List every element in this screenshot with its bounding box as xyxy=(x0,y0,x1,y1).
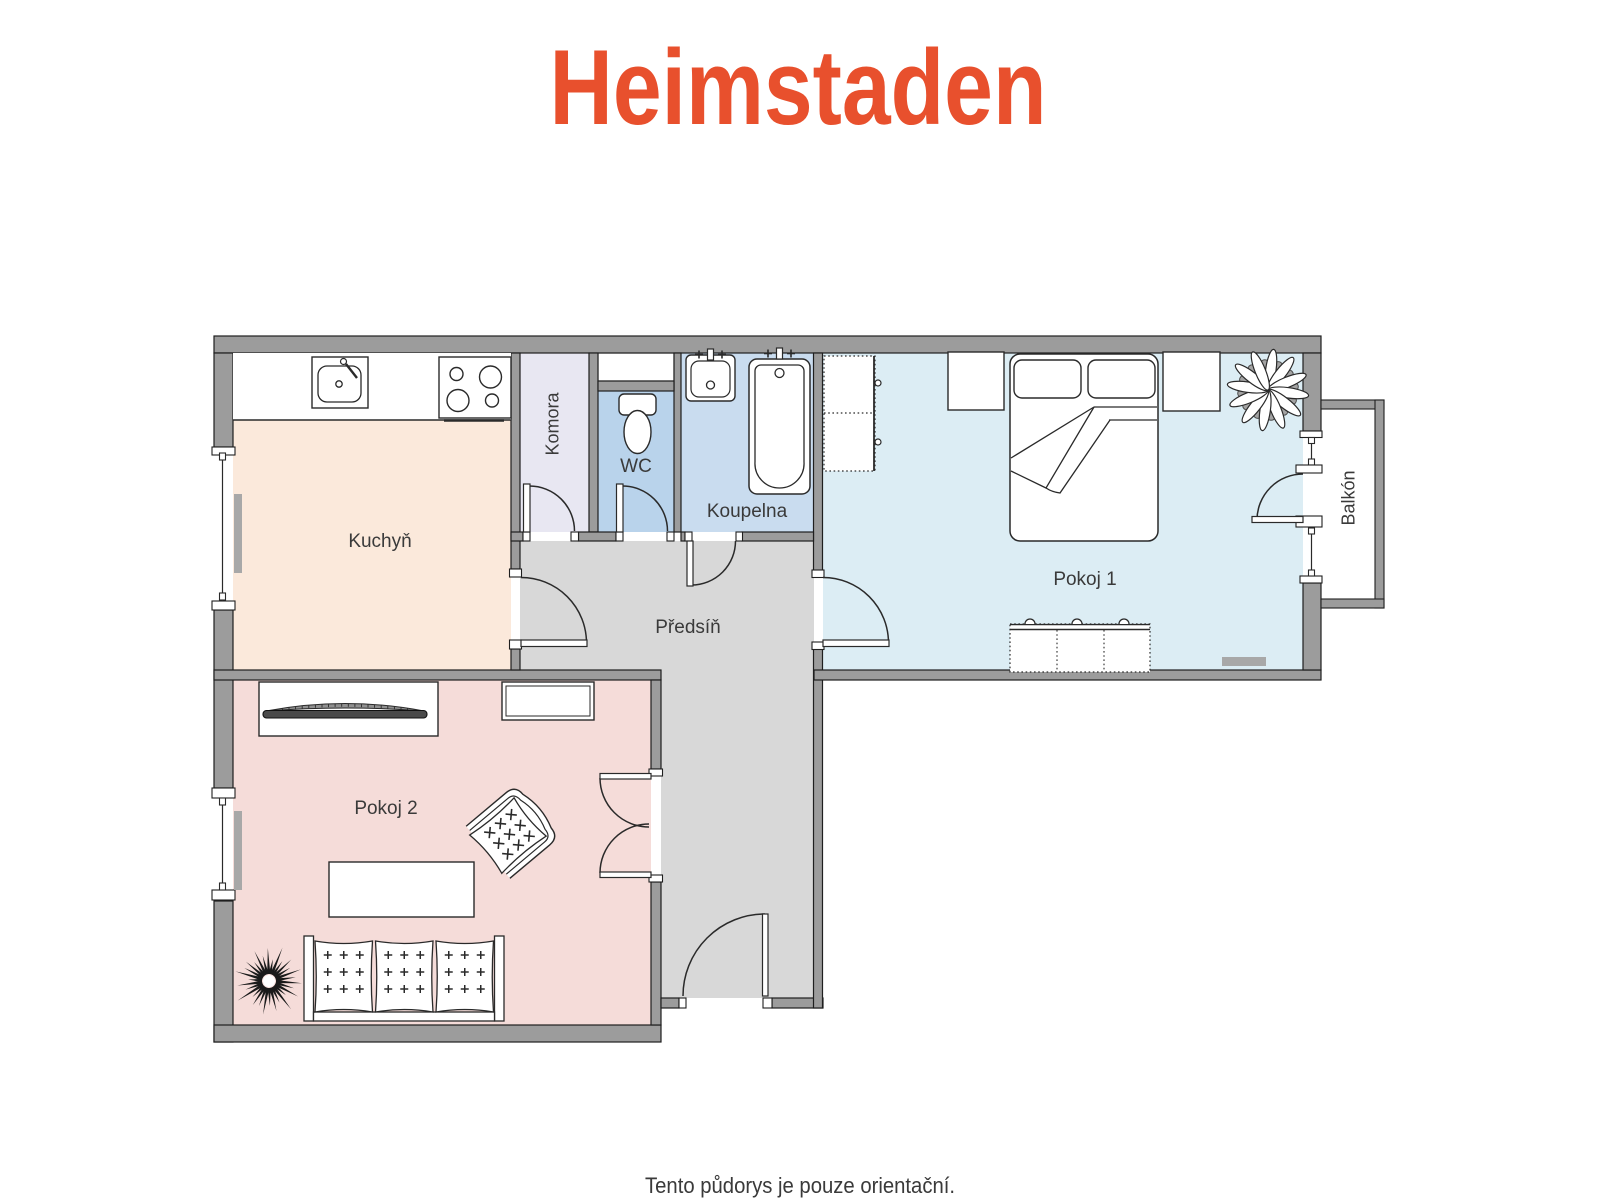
svg-text:Tento půdorys je pouze orienta: Tento půdorys je pouze orientační. xyxy=(645,1173,955,1198)
svg-text:Heimstaden: Heimstaden xyxy=(550,27,1047,147)
svg-text:Pokoj 2: Pokoj 2 xyxy=(354,798,417,819)
svg-text:Komora: Komora xyxy=(543,392,563,456)
svg-text:Předsíň: Předsíň xyxy=(655,617,720,638)
svg-text:Pokoj 1: Pokoj 1 xyxy=(1053,569,1116,590)
svg-text:Koupelna: Koupelna xyxy=(707,501,788,522)
svg-text:WC: WC xyxy=(620,456,652,477)
svg-text:Balkón: Balkón xyxy=(1339,470,1359,525)
svg-text:Kuchyň: Kuchyň xyxy=(348,531,411,552)
